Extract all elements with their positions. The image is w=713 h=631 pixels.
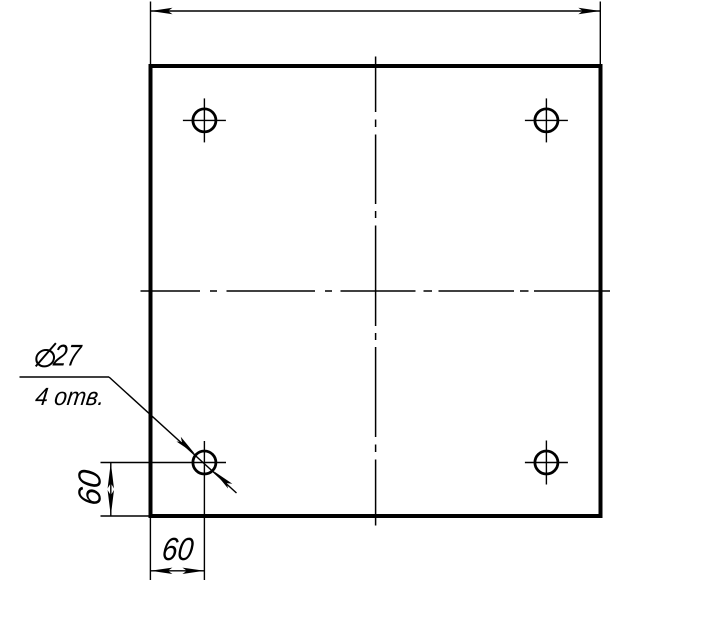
svg-text:4 отв.: 4 отв. xyxy=(34,383,106,411)
svg-text:60: 60 xyxy=(71,468,107,508)
svg-text:27: 27 xyxy=(51,340,84,373)
svg-text:60: 60 xyxy=(160,531,196,567)
